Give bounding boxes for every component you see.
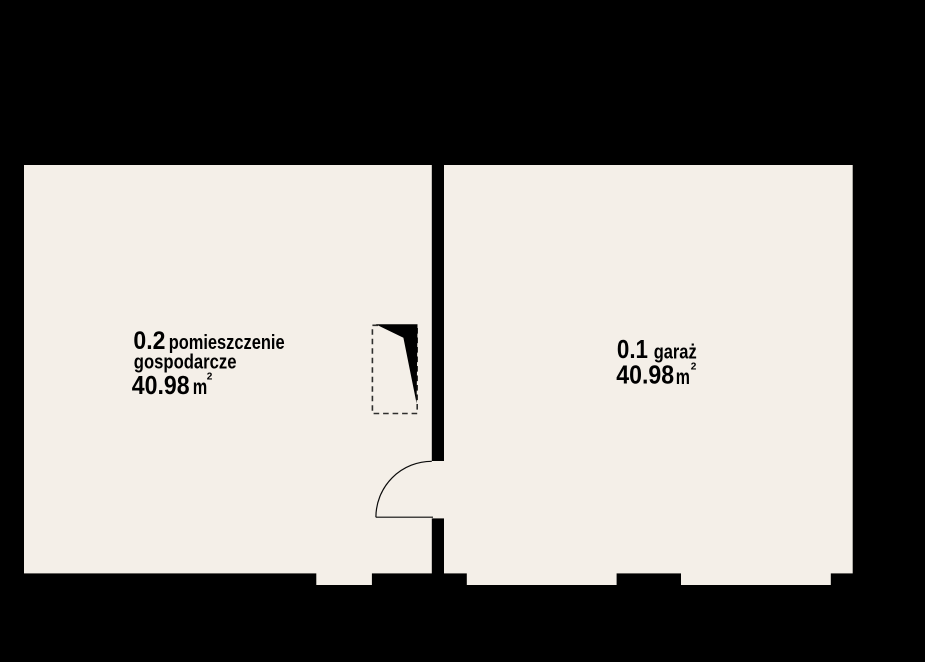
svg-text:2: 2 <box>207 370 213 382</box>
svg-text:0.1: 0.1 <box>617 334 648 364</box>
svg-text:m: m <box>193 376 208 399</box>
svg-text:2: 2 <box>691 361 697 373</box>
svg-text:40.98: 40.98 <box>132 372 190 400</box>
svg-text:gospodarcze: gospodarcze <box>134 351 237 374</box>
svg-text:m: m <box>676 366 690 389</box>
svg-text:40.98: 40.98 <box>616 362 674 390</box>
